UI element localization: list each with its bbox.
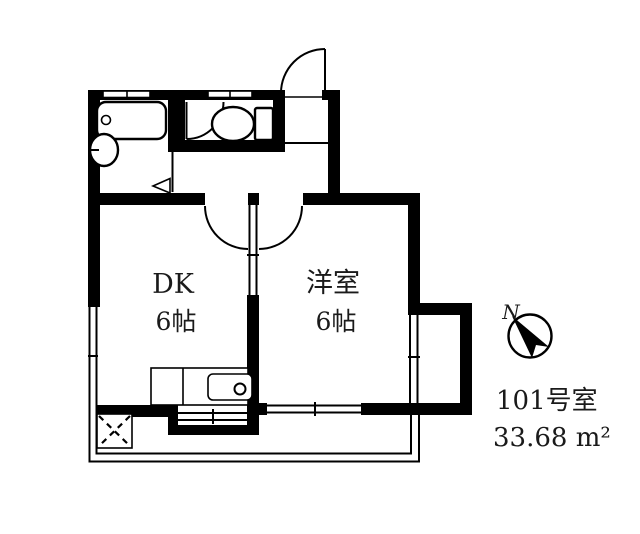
wall-toilet-left (170, 98, 185, 142)
wall-rooms-top-right (303, 193, 420, 205)
dk-room-size: 6帖 (156, 307, 197, 336)
doors (153, 49, 328, 295)
western-room-size: 6帖 (316, 307, 357, 336)
entry-door-arc (281, 49, 325, 93)
unit-info: 101号室 33.68 m² (493, 386, 611, 453)
dk-door-arc (205, 206, 248, 249)
washroom-door-triangle (153, 179, 170, 194)
dk-room-label: DK (152, 269, 195, 300)
wall-bay-bottom (168, 425, 259, 435)
wall-protrusion-right (460, 303, 472, 415)
wall-entry-right (328, 90, 340, 205)
toilet-tank-icon (255, 108, 273, 140)
wall-yoshitsu-right (408, 193, 420, 305)
yoshitsu-door-arc (259, 206, 302, 249)
wall-toilet-right (273, 98, 285, 152)
wall-toilet-bottom (170, 140, 285, 152)
toilet-icon (212, 107, 254, 141)
wall-rooms-top-left (88, 193, 205, 205)
unit-number-label: 101号室 (496, 386, 598, 416)
western-room-label: 洋室 (306, 268, 360, 299)
walls (88, 90, 472, 435)
wall-door-post (248, 193, 259, 205)
floor-plan-canvas: N DK 6帖 洋室 6帖 101号室 33.68 m² (0, 0, 640, 534)
compass-icon: N (501, 300, 551, 358)
wall-yoshitsu-bottom-right (361, 403, 472, 415)
compass-north-label: N (501, 300, 521, 324)
floor-plan: N DK 6帖 洋室 6帖 101号室 33.68 m² (0, 0, 640, 534)
unit-area-label: 33.68 m² (493, 423, 611, 453)
